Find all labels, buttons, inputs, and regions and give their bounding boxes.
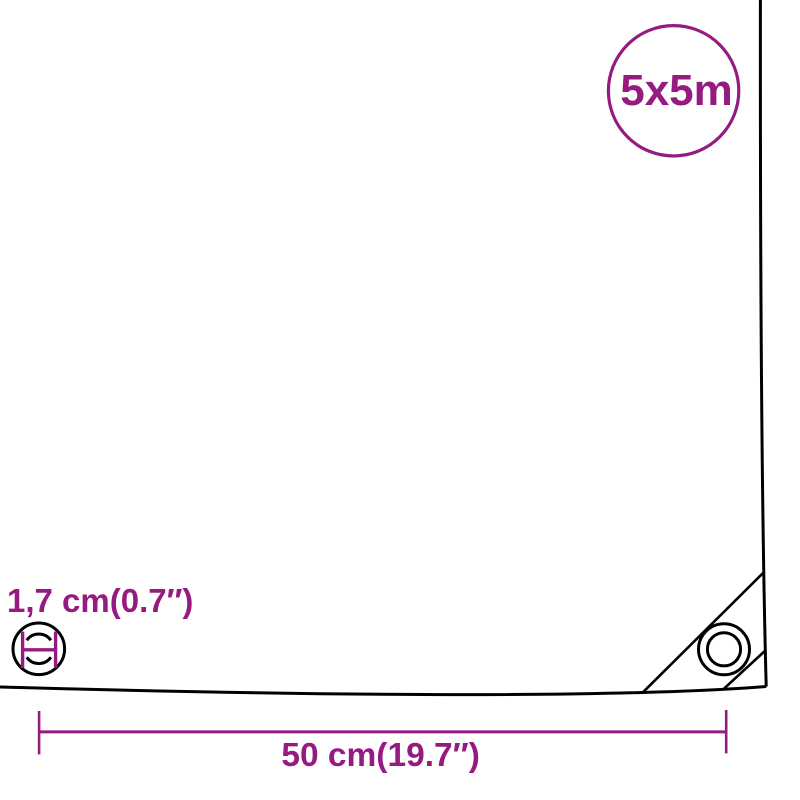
svg-text:1,7 cm(0.7″): 1,7 cm(0.7″) — [7, 582, 193, 619]
svg-text:50 cm(19.7″): 50 cm(19.7″) — [281, 737, 480, 774]
svg-text:5x5m: 5x5m — [620, 66, 733, 115]
